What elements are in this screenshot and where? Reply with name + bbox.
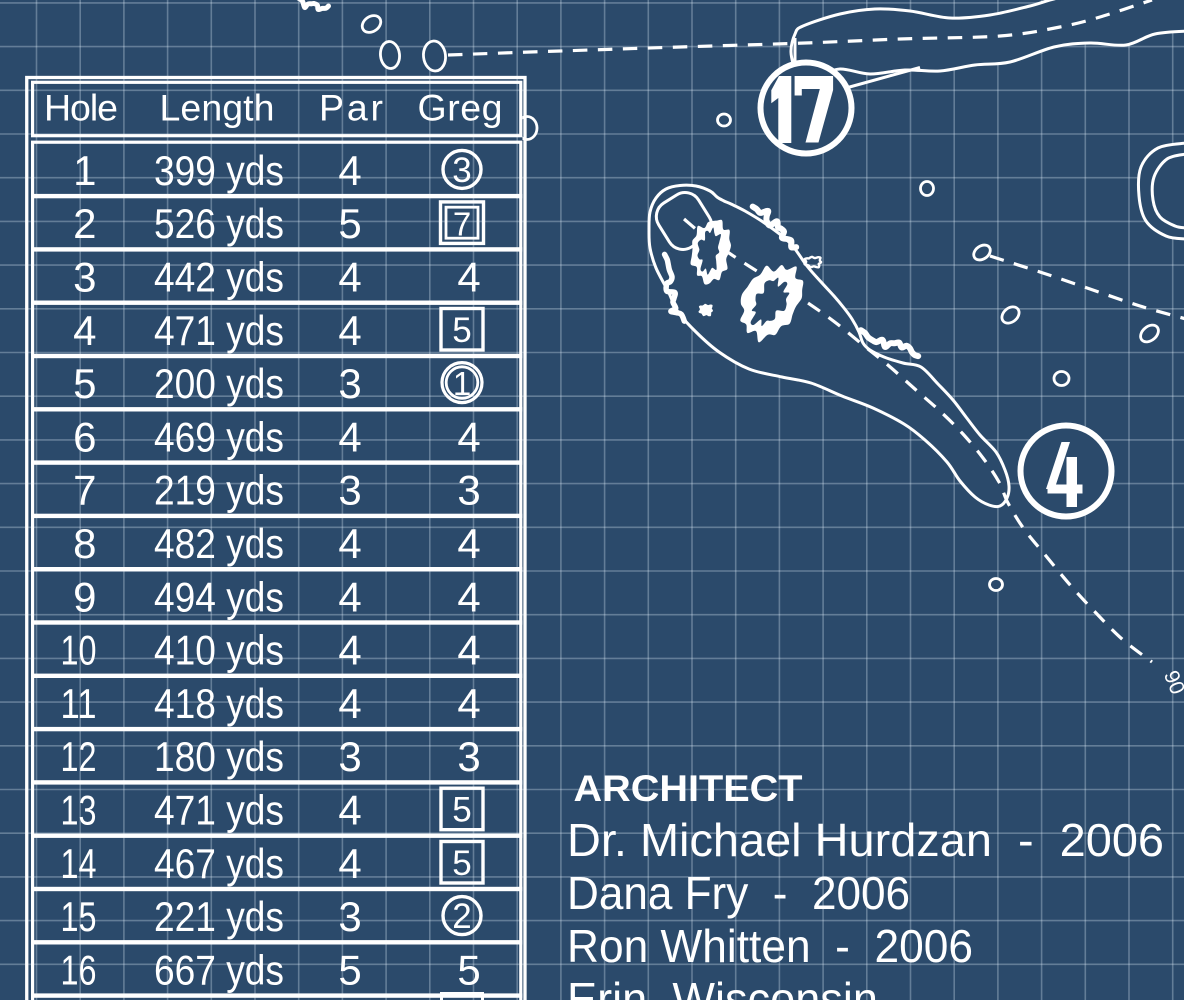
svg-text:5: 5 bbox=[338, 946, 361, 993]
svg-text:5: 5 bbox=[452, 311, 471, 350]
svg-text:410 yds: 410 yds bbox=[154, 627, 284, 674]
svg-text:469 yds: 469 yds bbox=[154, 413, 284, 460]
svg-text:4: 4 bbox=[457, 254, 480, 301]
svg-text:467 yds: 467 yds bbox=[154, 840, 284, 887]
svg-text:11: 11 bbox=[61, 680, 97, 727]
svg-text:4: 4 bbox=[338, 254, 361, 301]
svg-text:8: 8 bbox=[73, 520, 96, 567]
svg-text:15: 15 bbox=[61, 893, 97, 940]
svg-text:4: 4 bbox=[457, 627, 480, 674]
svg-text:9: 9 bbox=[73, 573, 96, 620]
svg-text:7: 7 bbox=[73, 467, 96, 514]
svg-text:4: 4 bbox=[457, 413, 480, 460]
svg-text:3: 3 bbox=[338, 467, 361, 514]
svg-text:Ron Whitten - 2006: Ron Whitten - 2006 bbox=[567, 920, 973, 972]
svg-text:4: 4 bbox=[338, 787, 361, 834]
svg-text:471 yds: 471 yds bbox=[154, 787, 284, 834]
svg-text:12: 12 bbox=[61, 733, 97, 780]
svg-text:Par: Par bbox=[319, 87, 383, 129]
svg-text:4: 4 bbox=[338, 840, 361, 887]
svg-text:7: 7 bbox=[453, 205, 471, 242]
svg-text:471 yds: 471 yds bbox=[154, 307, 284, 354]
svg-text:Greg: Greg bbox=[418, 87, 503, 129]
svg-text:4: 4 bbox=[338, 680, 361, 727]
svg-text:16: 16 bbox=[61, 946, 97, 993]
svg-text:Dana Fry - 2006: Dana Fry - 2006 bbox=[567, 867, 910, 919]
svg-text:2: 2 bbox=[452, 897, 471, 936]
svg-text:494 yds: 494 yds bbox=[154, 573, 284, 620]
svg-text:219 yds: 219 yds bbox=[154, 467, 284, 514]
svg-text:221 yds: 221 yds bbox=[154, 893, 284, 940]
svg-text:4: 4 bbox=[457, 573, 480, 620]
svg-text:3: 3 bbox=[457, 467, 480, 514]
svg-text:526 yds: 526 yds bbox=[154, 200, 284, 247]
svg-text:4: 4 bbox=[338, 147, 361, 194]
svg-text:3: 3 bbox=[338, 360, 361, 407]
svg-text:5: 5 bbox=[452, 791, 471, 830]
svg-text:3: 3 bbox=[338, 733, 361, 780]
svg-text:Dr. Michael Hurdzan - 2006: Dr. Michael Hurdzan - 2006 bbox=[567, 814, 1164, 866]
svg-text:180 yds: 180 yds bbox=[154, 733, 284, 780]
svg-text:667 yds: 667 yds bbox=[154, 946, 284, 993]
svg-text:10: 10 bbox=[61, 627, 97, 674]
svg-text:5: 5 bbox=[73, 360, 96, 407]
svg-text:4: 4 bbox=[73, 307, 96, 354]
svg-text:6: 6 bbox=[73, 413, 96, 460]
svg-text:4: 4 bbox=[338, 307, 361, 354]
svg-text:5: 5 bbox=[452, 844, 471, 883]
svg-text:4: 4 bbox=[338, 573, 361, 620]
svg-text:4: 4 bbox=[338, 413, 361, 460]
svg-text:442 yds: 442 yds bbox=[154, 254, 284, 301]
svg-text:5: 5 bbox=[338, 200, 361, 247]
svg-text:14: 14 bbox=[61, 840, 97, 887]
svg-text:Hole: Hole bbox=[44, 87, 118, 129]
svg-text:4: 4 bbox=[457, 680, 480, 727]
svg-text:Length: Length bbox=[160, 87, 275, 129]
svg-text:4: 4 bbox=[457, 520, 480, 567]
svg-text:482 yds: 482 yds bbox=[154, 520, 284, 567]
svg-text:3: 3 bbox=[73, 254, 96, 301]
svg-text:Erin, Wisconsin: Erin, Wisconsin bbox=[567, 973, 878, 1000]
svg-text:5: 5 bbox=[457, 946, 480, 993]
svg-text:2: 2 bbox=[73, 200, 96, 247]
svg-text:1: 1 bbox=[453, 365, 471, 402]
svg-text:ARCHITECT: ARCHITECT bbox=[574, 768, 803, 809]
svg-text:200 yds: 200 yds bbox=[154, 360, 284, 407]
svg-text:1: 1 bbox=[73, 147, 96, 194]
svg-text:3: 3 bbox=[452, 151, 471, 190]
svg-text:3: 3 bbox=[457, 733, 480, 780]
svg-text:3: 3 bbox=[338, 893, 361, 940]
svg-text:4: 4 bbox=[338, 627, 361, 674]
svg-text:399 yds: 399 yds bbox=[154, 147, 284, 194]
svg-text:418 yds: 418 yds bbox=[154, 680, 284, 727]
svg-text:4: 4 bbox=[338, 520, 361, 567]
svg-text:13: 13 bbox=[61, 787, 97, 834]
